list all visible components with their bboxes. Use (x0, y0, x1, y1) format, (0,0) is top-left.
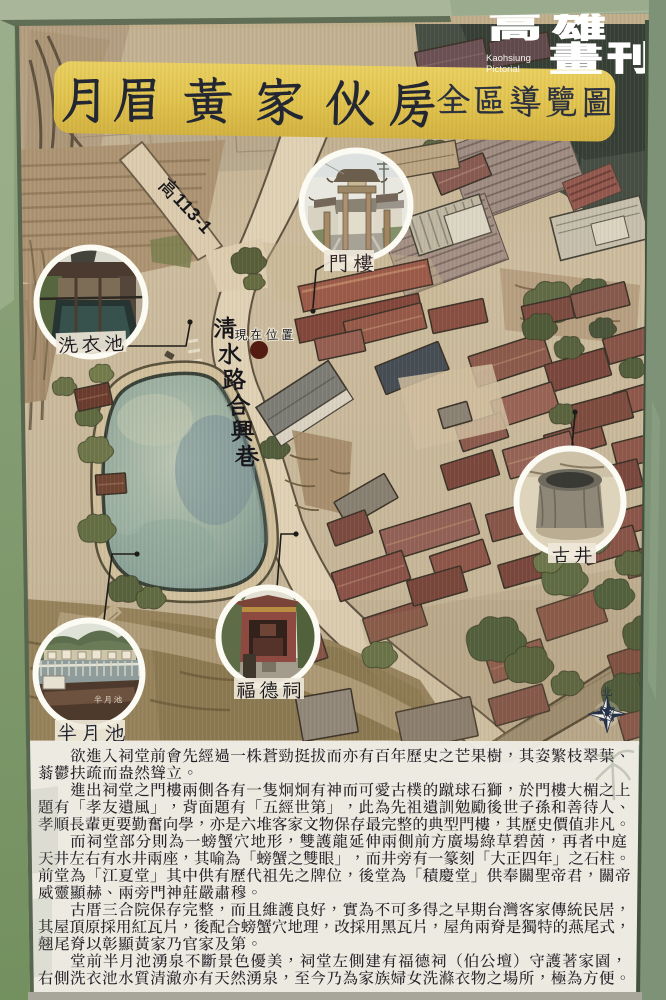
svg-text:Kaohsiung: Kaohsiung (486, 53, 531, 64)
svg-text:Pictorial: Pictorial (486, 64, 520, 75)
